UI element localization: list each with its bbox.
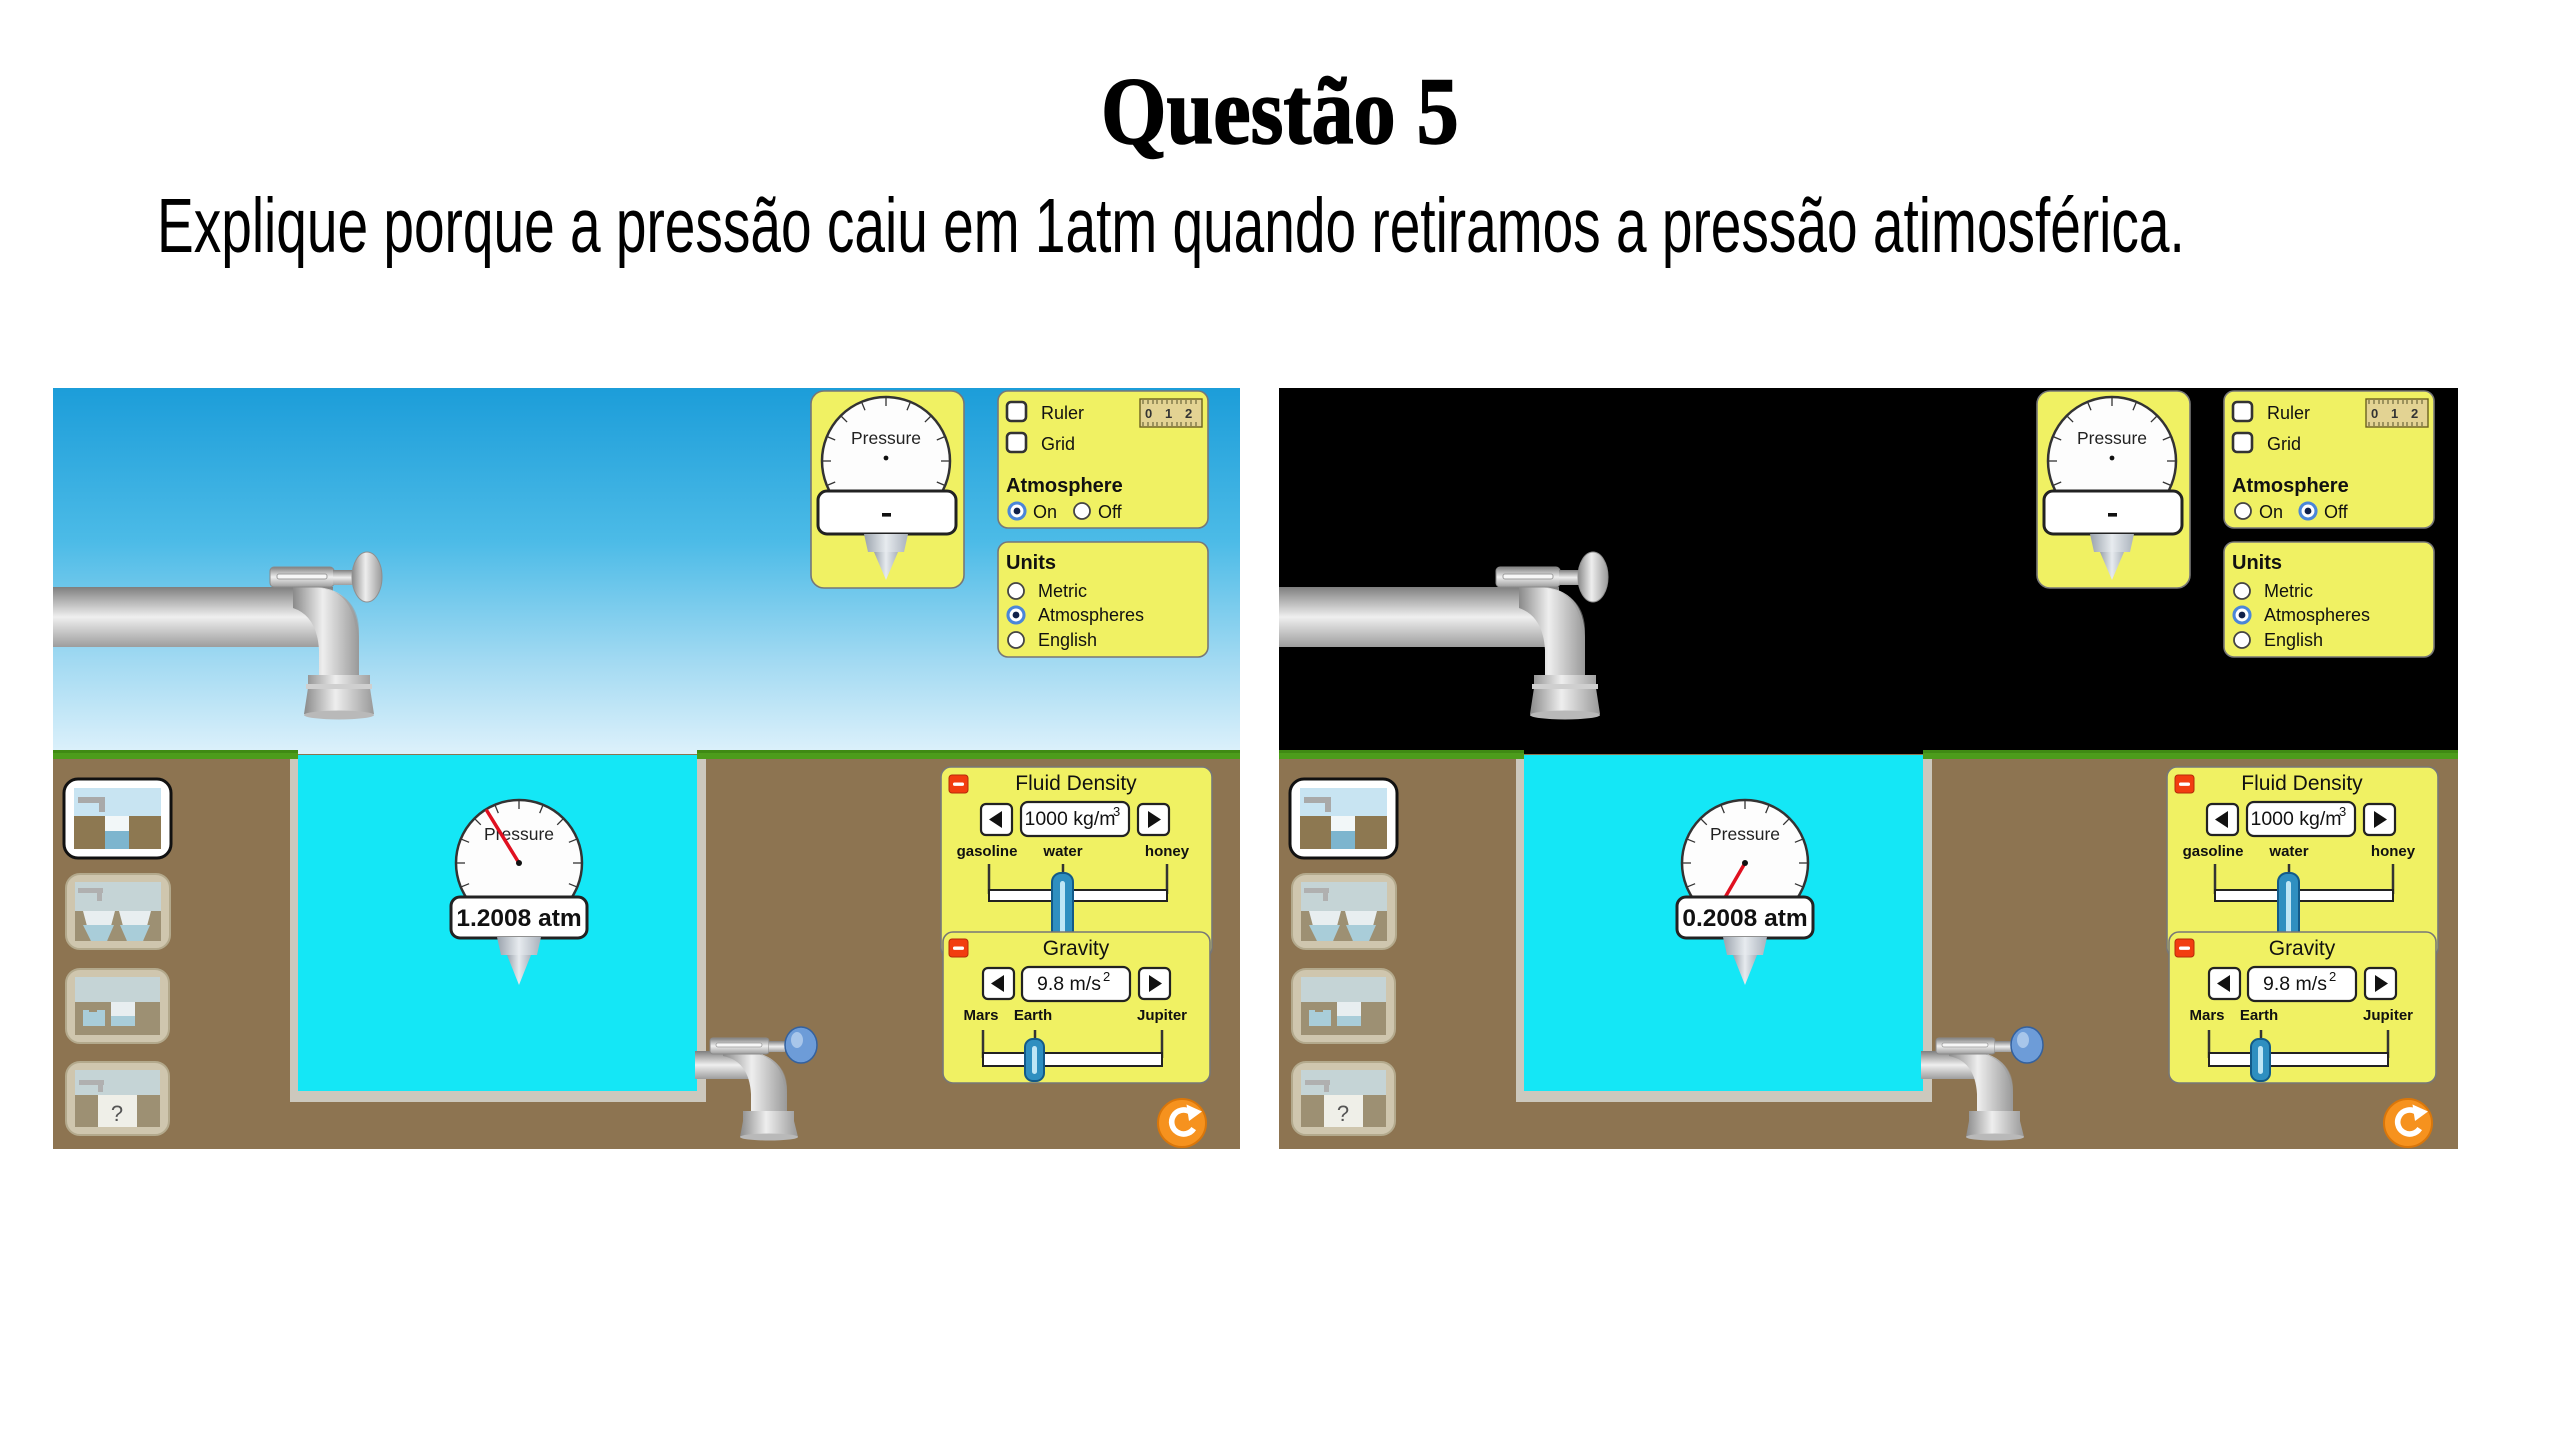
svg-text:English: English [1038,630,1097,650]
svg-text:2: 2 [1185,406,1192,421]
svg-text:Mars: Mars [2189,1007,2224,1024]
svg-text:2: 2 [2329,969,2336,984]
svg-text:Ruler: Ruler [2267,403,2310,423]
svg-text:1000 kg/m: 1000 kg/m [1024,808,1115,830]
svg-text:Pressure: Pressure [484,824,554,844]
svg-text:?: ? [111,1101,123,1126]
svg-text:9.8 m/s: 9.8 m/s [1037,973,1101,995]
svg-text:0: 0 [2371,406,2378,421]
svg-text:9.8 m/s: 9.8 m/s [2263,973,2327,995]
svg-text:water: water [2268,843,2308,860]
svg-text:On: On [1033,502,1057,522]
svg-text:1: 1 [2391,406,2398,421]
svg-text:gasoline: gasoline [2183,843,2244,860]
svg-text:Atmospheres: Atmospheres [1038,605,1144,625]
svg-text:2: 2 [1103,969,1110,984]
svg-text:Metric: Metric [1038,581,1087,601]
svg-text:Units: Units [2232,552,2282,574]
svg-text:Atmosphere: Atmosphere [2232,475,2349,497]
svg-text:honey: honey [1145,843,1190,860]
svg-text:gasoline: gasoline [957,843,1018,860]
svg-text:Metric: Metric [2264,581,2313,601]
svg-text:Mars: Mars [963,1007,998,1024]
svg-text:3: 3 [1113,804,1120,819]
svg-text:1: 1 [1165,406,1172,421]
svg-text:Pressure: Pressure [851,428,921,448]
svg-text:On: On [2259,502,2283,522]
svg-text:1000 kg/m: 1000 kg/m [2250,808,2341,830]
svg-text:Ruler: Ruler [1041,403,1084,423]
svg-text:0: 0 [1145,406,1152,421]
svg-text:Pressure: Pressure [2077,428,2147,448]
svg-text:1.2008 atm: 1.2008 atm [456,905,581,932]
svg-text:Grid: Grid [1041,434,1075,454]
svg-text:English: English [2264,630,2323,650]
svg-text:honey: honey [2371,843,2416,860]
svg-text:Off: Off [1098,502,1123,522]
svg-text:Fluid Density: Fluid Density [1015,772,1137,795]
svg-text:Units: Units [1006,552,1056,574]
svg-text:Earth: Earth [1014,1007,1052,1024]
svg-text:Gravity: Gravity [1043,937,1110,960]
svg-text:?: ? [1337,1101,1349,1126]
svg-text:Jupiter: Jupiter [2363,1007,2413,1024]
svg-text:Off: Off [2324,502,2349,522]
svg-text:Pressure: Pressure [1710,824,1780,844]
svg-text:2: 2 [2411,406,2418,421]
svg-text:water: water [1042,843,1082,860]
svg-text:Atmosphere: Atmosphere [1006,475,1123,497]
svg-text:Gravity: Gravity [2269,937,2336,960]
svg-text:0.2008 atm: 0.2008 atm [1682,905,1807,932]
svg-text:Jupiter: Jupiter [1137,1007,1187,1024]
svg-text:3: 3 [2339,804,2346,819]
svg-text:Grid: Grid [2267,434,2301,454]
svg-text:Earth: Earth [2240,1007,2278,1024]
svg-text:Fluid Density: Fluid Density [2241,772,2363,795]
svg-text:Atmospheres: Atmospheres [2264,605,2370,625]
